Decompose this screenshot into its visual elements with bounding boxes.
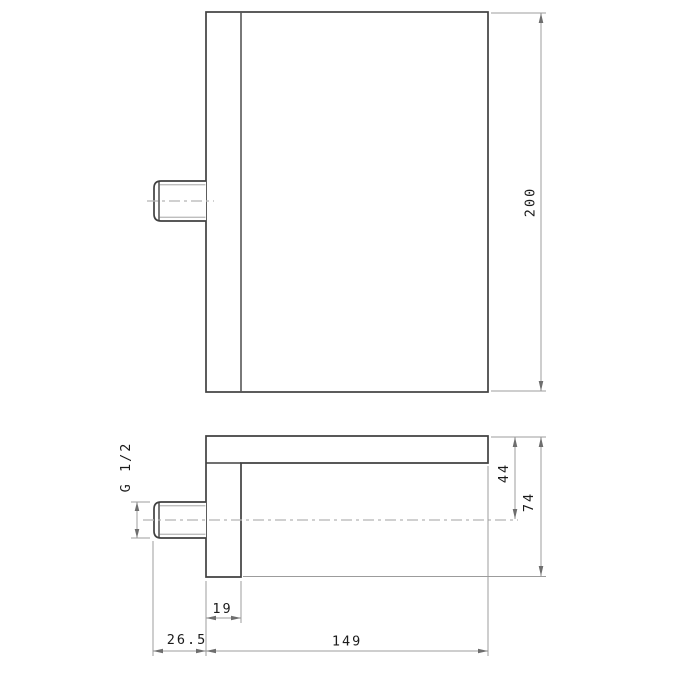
dimension-overall-height: 200 [491, 13, 546, 391]
arrowhead [153, 649, 163, 654]
arrowhead [513, 509, 518, 519]
front-view [147, 12, 488, 392]
arrowhead [196, 649, 206, 654]
arrowhead [539, 566, 544, 576]
dimension-thread-size: G 1/2 [118, 442, 150, 538]
arrowhead [206, 649, 216, 654]
arrowhead [135, 502, 140, 511]
arrowhead [135, 529, 140, 538]
arrowhead [513, 437, 518, 447]
dimension-leg-width: 19 [206, 581, 241, 623]
side-view-body-outline [206, 436, 488, 577]
dim-label-thread-size: G 1/2 [118, 442, 134, 493]
dim-label-leg-width: 19 [212, 601, 232, 617]
dimension-stub-length: 26.5 [153, 541, 207, 656]
front-view-body-outline [206, 12, 488, 392]
side-view [143, 436, 518, 577]
technical-drawing-canvas: 200 G 1/2 44 [0, 0, 700, 700]
arrowhead [478, 649, 488, 654]
dimension-center-depth: 44 [491, 437, 546, 519]
dimension-body-length: 149 [206, 466, 488, 656]
dim-label-overall-depth: 74 [521, 492, 537, 512]
cad-dimension-drawing: 200 G 1/2 44 [0, 0, 700, 700]
dim-label-overall-height: 200 [523, 187, 539, 217]
dim-label-body-length: 149 [332, 634, 362, 650]
arrowhead [539, 381, 544, 391]
arrowhead [539, 437, 544, 447]
dim-label-center-depth: 44 [496, 463, 512, 483]
arrowhead [539, 13, 544, 23]
dim-label-stub-length: 26.5 [167, 632, 208, 648]
